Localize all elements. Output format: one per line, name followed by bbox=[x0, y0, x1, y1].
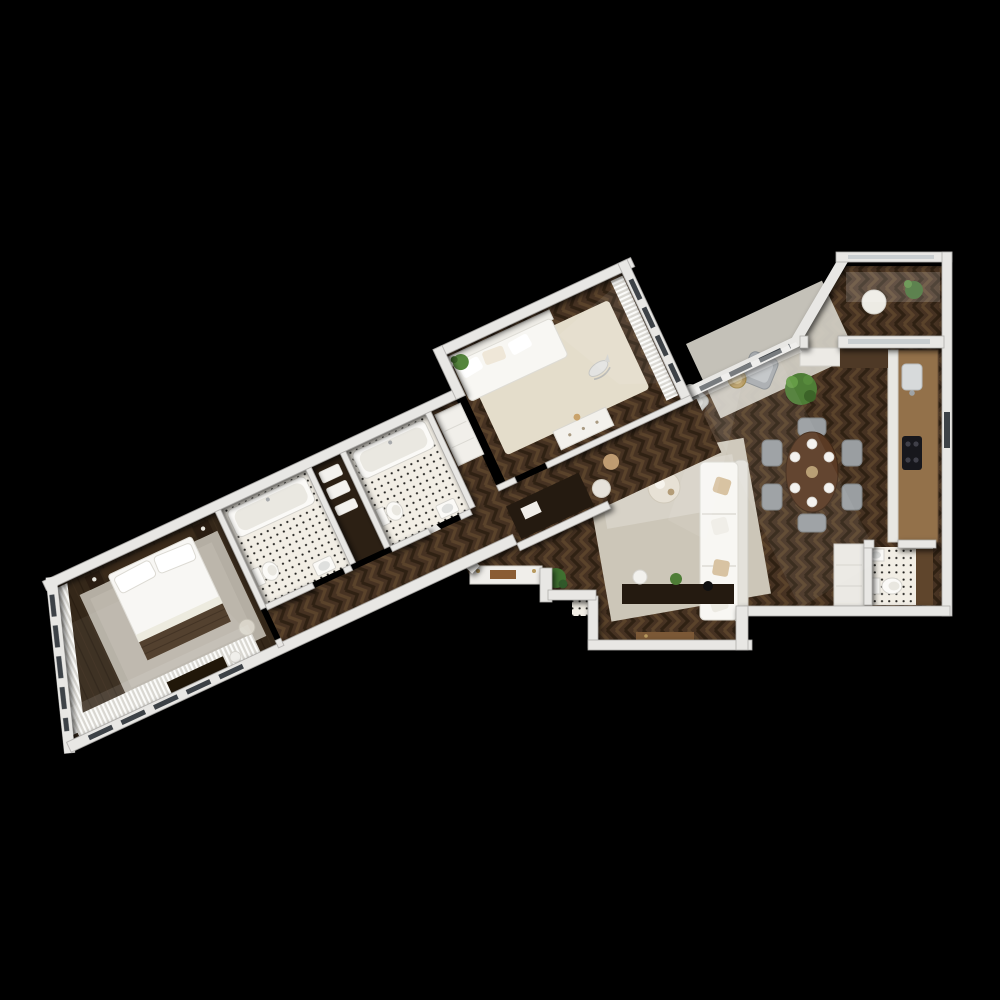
bench-knob bbox=[532, 569, 536, 573]
kitchen-tall-cabinet bbox=[840, 348, 888, 368]
loggia-table bbox=[862, 290, 886, 314]
right-wall-window bbox=[944, 412, 950, 448]
coffee-table-deco2 bbox=[668, 489, 675, 496]
storage-cabinet bbox=[834, 544, 864, 606]
floor-plan-render bbox=[0, 0, 1000, 1000]
toilet-tank bbox=[872, 578, 880, 594]
dining-chair bbox=[762, 484, 782, 510]
dining-chair bbox=[798, 514, 826, 532]
entry-bench bbox=[470, 566, 542, 584]
decor-sphere bbox=[633, 570, 647, 584]
entry-wall-stub bbox=[736, 606, 748, 650]
dining-chair bbox=[762, 440, 782, 466]
loggia-partition bbox=[800, 336, 808, 348]
console-plant bbox=[670, 573, 682, 585]
speaker-disc bbox=[703, 581, 713, 591]
entry-jog-wall bbox=[548, 590, 596, 600]
wc-wall-top bbox=[864, 540, 874, 548]
dining-chair bbox=[842, 440, 862, 466]
render-stage bbox=[0, 0, 1000, 1000]
loggia-plant-leaf bbox=[904, 280, 912, 288]
wc-wall-left bbox=[864, 548, 872, 605]
toilet-seat bbox=[889, 582, 900, 591]
media-console bbox=[622, 584, 734, 604]
bottom-wall bbox=[744, 606, 950, 616]
cooktop bbox=[902, 436, 922, 470]
loggia-window bbox=[848, 255, 934, 259]
loggia-partition-window bbox=[848, 339, 930, 344]
entry-wall-bottom bbox=[588, 640, 752, 650]
table-centerpiece bbox=[806, 466, 818, 478]
kitchen-upper-cabinet bbox=[800, 348, 840, 366]
wc-wall-top bbox=[898, 540, 936, 548]
dining-chair bbox=[842, 484, 862, 510]
door-handle bbox=[644, 634, 648, 638]
wc-vanity-panel bbox=[916, 549, 933, 605]
bench-knob bbox=[476, 569, 480, 573]
kitchen-front bbox=[888, 350, 898, 542]
bench-tray bbox=[490, 570, 516, 579]
faucet bbox=[909, 390, 915, 396]
kitchen-sink bbox=[902, 364, 922, 390]
wc-basin-bowl bbox=[871, 551, 881, 558]
palm-plant bbox=[785, 373, 817, 405]
